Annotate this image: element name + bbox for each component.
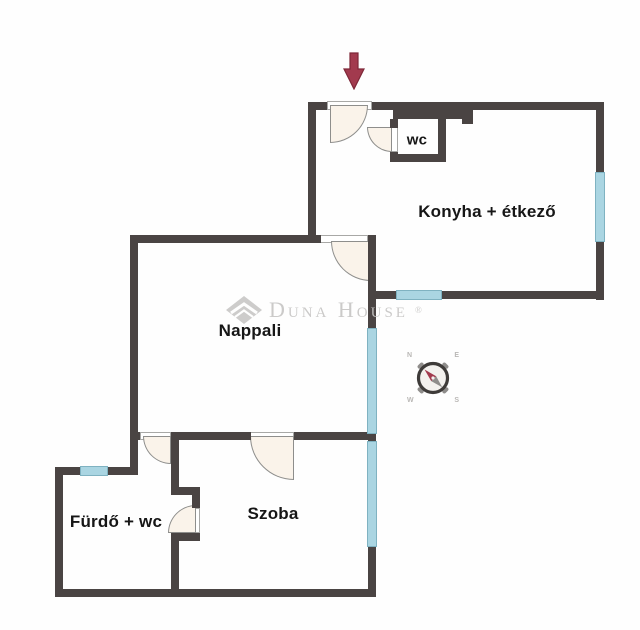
kitchen-living-door-swing bbox=[331, 241, 371, 281]
bedroom-door-swing bbox=[250, 436, 294, 480]
compass-rose bbox=[409, 354, 457, 402]
wall-segment bbox=[130, 432, 140, 440]
wall-segment bbox=[596, 102, 604, 172]
entrance-arrow-icon bbox=[343, 52, 365, 90]
entrance-door-swing bbox=[330, 105, 368, 143]
room-label-bedroom: Szoba bbox=[247, 504, 298, 524]
compass-label-e: E bbox=[454, 352, 459, 359]
duna-house-logo-icon bbox=[226, 296, 262, 324]
wall-segment-wc-shaft bbox=[393, 110, 473, 119]
room-label-wc: wc bbox=[407, 132, 427, 149]
floor-plan: Duna House ® Konyha + étkező wc Nappali … bbox=[0, 0, 640, 630]
duna-house-logo-text: Duna House bbox=[269, 296, 408, 324]
room-label-living: Nappali bbox=[219, 321, 282, 341]
window-kitchen-east bbox=[595, 172, 605, 242]
room-label-kitchen: Konyha + étkező bbox=[418, 202, 556, 222]
wc-door-swing bbox=[367, 127, 392, 152]
compass-icon: N E S W bbox=[409, 354, 457, 402]
wall-segment bbox=[171, 432, 179, 495]
wall-segment bbox=[55, 589, 376, 597]
compass-label-n: N bbox=[407, 352, 412, 359]
entrance-arrow-shape bbox=[344, 53, 364, 89]
room-label-bathroom: Fürdő + wc bbox=[70, 512, 162, 532]
window-living-east bbox=[367, 328, 377, 434]
wall-segment bbox=[130, 235, 321, 243]
wall-segment bbox=[390, 119, 398, 128]
living-bath-door-swing bbox=[143, 436, 171, 464]
wall-segment bbox=[192, 487, 200, 508]
window-bedroom-east bbox=[367, 441, 377, 547]
wall-segment bbox=[438, 119, 446, 162]
wall-segment bbox=[294, 432, 368, 440]
compass-pivot bbox=[431, 376, 434, 379]
window-kitchen-south bbox=[396, 290, 442, 300]
wall-segment bbox=[108, 467, 138, 475]
duna-house-watermark: Duna House ® bbox=[226, 296, 422, 324]
bathroom-door-swing bbox=[168, 505, 196, 533]
wall-segment bbox=[372, 102, 604, 110]
wall-segment bbox=[55, 467, 63, 597]
registered-mark: ® bbox=[415, 305, 422, 315]
wall-segment bbox=[442, 291, 604, 299]
compass-label-w: W bbox=[407, 397, 414, 404]
compass-label-s: S bbox=[454, 397, 459, 404]
wall-segment bbox=[171, 432, 251, 440]
wall-segment bbox=[368, 235, 376, 328]
wall-segment bbox=[171, 533, 179, 597]
wall-segment bbox=[308, 102, 316, 243]
wall-segment bbox=[462, 110, 473, 124]
window-bathroom-north bbox=[80, 466, 108, 476]
